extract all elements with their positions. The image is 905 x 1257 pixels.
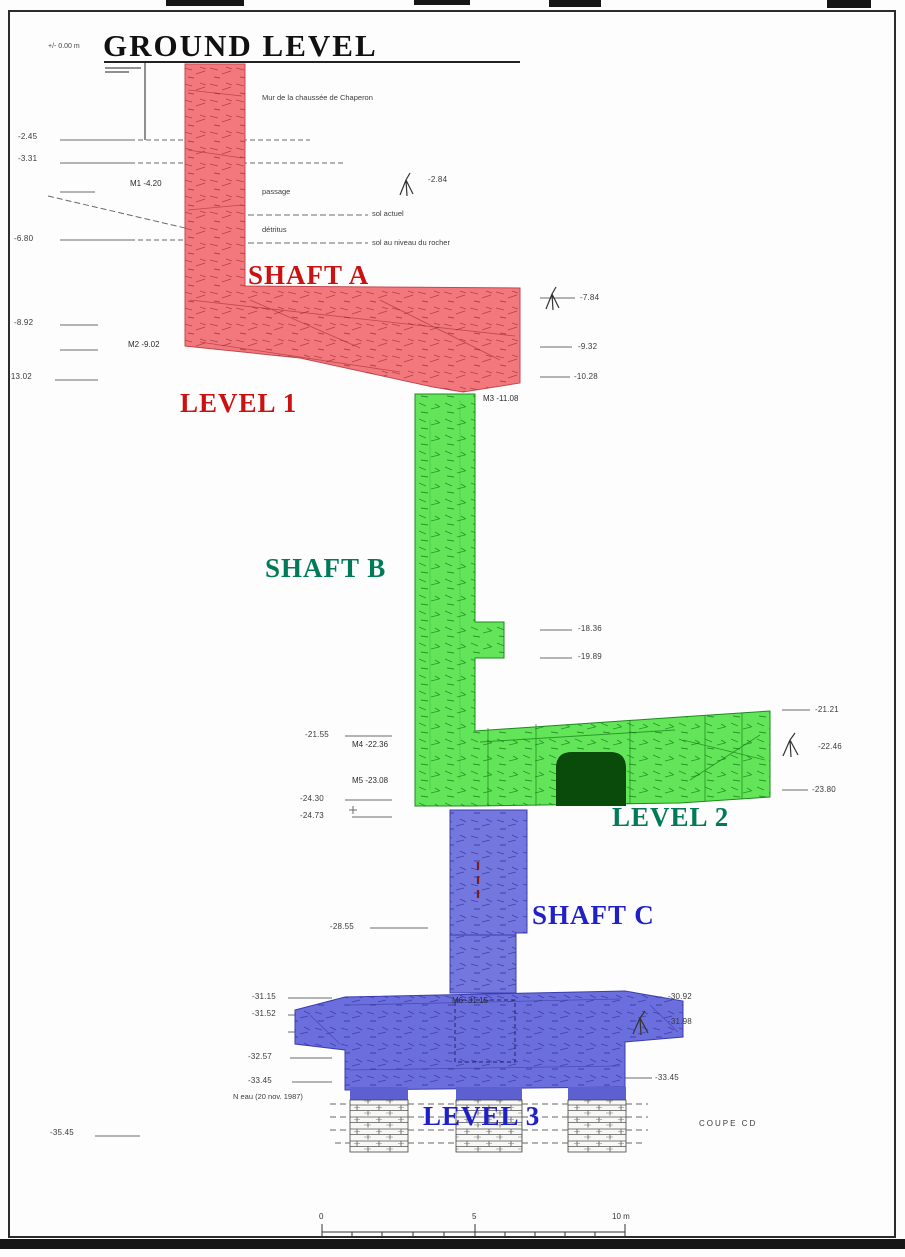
section-reference-label: COUPE CD — [699, 1119, 757, 1128]
cross-section-drawing — [0, 0, 905, 1257]
scale-bar — [322, 1224, 625, 1237]
shaft-c-level-3-shape — [295, 810, 683, 1090]
survey-cross-section-page: GROUND LEVEL +/- 0.00 m COUPE CD SHAFT A… — [0, 0, 905, 1257]
level-3-pillars — [330, 1087, 648, 1152]
scan-artifacts — [166, 0, 871, 8]
shaft-a-level-1-shape — [185, 64, 520, 392]
page-title: GROUND LEVEL — [103, 28, 378, 64]
gallery-door-opening — [556, 752, 626, 806]
bottom-scan-band — [0, 1239, 905, 1249]
datum-label: +/- 0.00 m — [48, 43, 80, 50]
shaft-b-level-2-shape — [415, 394, 770, 806]
ground-line — [104, 62, 520, 140]
